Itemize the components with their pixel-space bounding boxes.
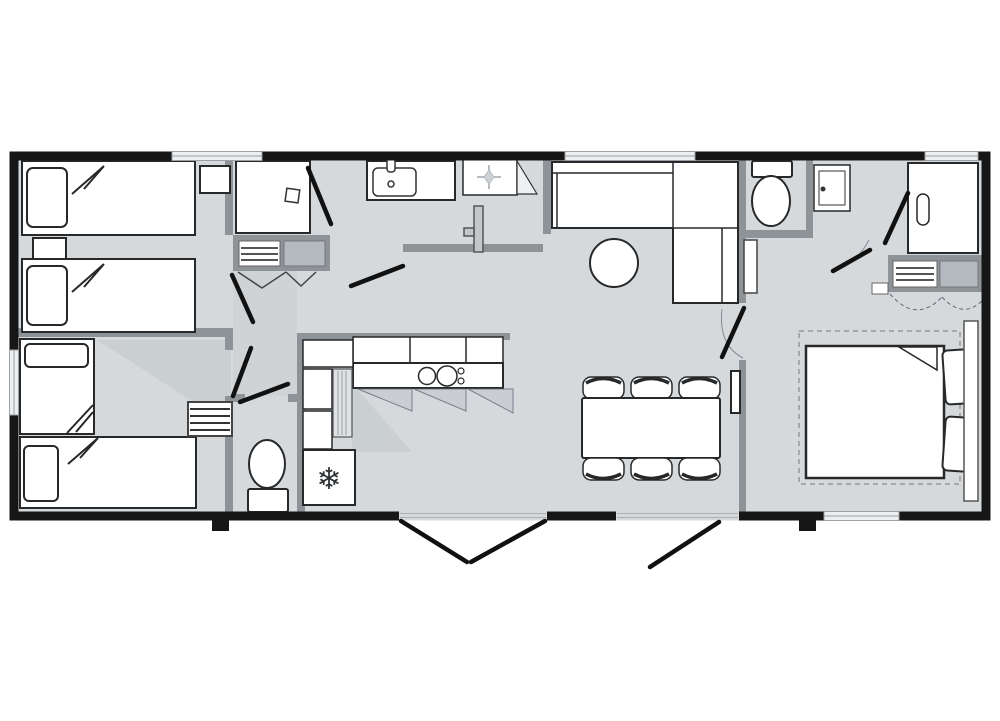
kitchen-cabinet (303, 369, 332, 409)
kitchen-cabinet (303, 340, 353, 367)
side-door-leaf (650, 522, 719, 567)
bathroom-washbasin (367, 157, 455, 200)
ladder-shelf (188, 402, 232, 436)
hall-closet-hanging (284, 241, 325, 266)
toilet-left (248, 440, 288, 512)
door-panel (474, 206, 483, 252)
master-shelf-hanging (940, 261, 978, 287)
pillow (25, 344, 88, 367)
side-door-opening (616, 512, 739, 521)
bed-frame (806, 346, 944, 478)
patio-door-opening (399, 512, 547, 521)
round-table (590, 239, 638, 287)
single-bed-horizontal (20, 437, 196, 508)
shower-enclosure (236, 161, 310, 233)
pillow (24, 446, 58, 501)
basin-counter (367, 161, 455, 200)
headboard (964, 321, 978, 501)
toilet-bowl (249, 440, 285, 488)
wall-bathroom-right (543, 158, 551, 234)
hand-basin (814, 165, 850, 211)
step (212, 520, 229, 531)
entry-steps (212, 520, 816, 531)
faucet-icon (821, 187, 826, 192)
wardrobe-handle (917, 194, 929, 225)
pillow (27, 266, 67, 325)
dining-set (582, 377, 720, 480)
nightstand (33, 238, 66, 259)
wall-tv (731, 371, 740, 413)
kitchen-cabinet (303, 411, 332, 449)
toilet-bowl (752, 176, 790, 226)
toilet-cistern (248, 489, 288, 512)
door-handle (464, 228, 474, 236)
wall-bedroom2-stub (225, 330, 233, 350)
dining-table (582, 398, 720, 458)
single-bed (22, 161, 195, 235)
toilet-right (752, 161, 792, 226)
floorplan-canvas: ❄ (0, 0, 1000, 721)
master-shelf-step (872, 283, 888, 294)
single-bed-vertical (20, 339, 94, 434)
exterior-door-leaves (401, 521, 719, 567)
wall-cabinets (353, 337, 503, 363)
patio-door-leaf (401, 521, 467, 562)
wall-wc2-bottom (739, 230, 813, 238)
wc-door-panel (744, 240, 757, 293)
patio-door-leaf (471, 521, 545, 562)
single-bed (22, 259, 195, 332)
pillow (27, 168, 67, 227)
freezer-snowflake-icon: ❄ (316, 462, 341, 497)
wardrobe (908, 163, 978, 253)
toilet-cistern (752, 161, 792, 177)
corner-table (200, 166, 230, 193)
wall-bathroom-bottom (403, 244, 543, 252)
step (799, 520, 816, 531)
wall-wc2-partition (806, 158, 813, 234)
floorplan-image: ❄ (0, 0, 1000, 721)
